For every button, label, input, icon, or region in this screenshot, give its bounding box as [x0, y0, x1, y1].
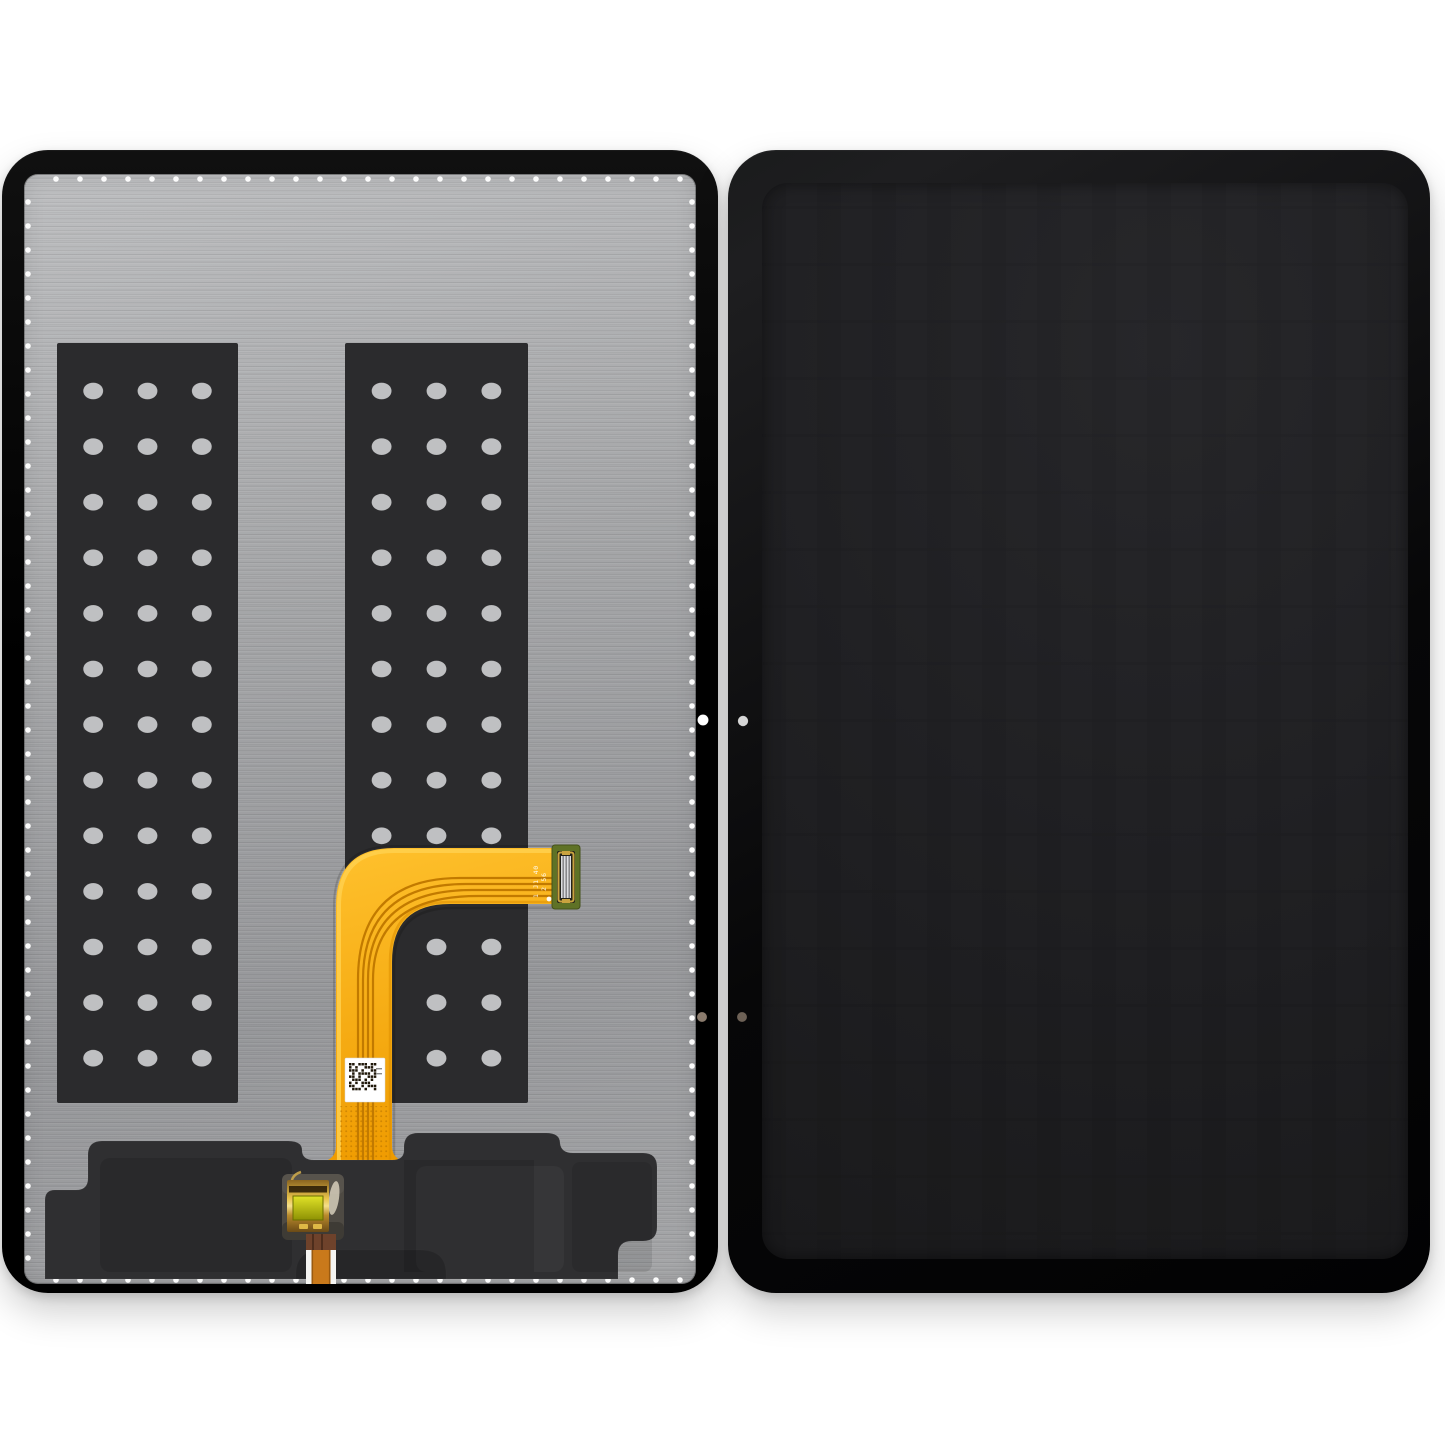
- front-panel: [728, 150, 1430, 1293]
- front-screen: [762, 183, 1408, 1259]
- metal-shield: [24, 174, 696, 1284]
- back-panel: [2, 150, 718, 1293]
- product-photo-tablet-display-assembly: 1 J1 40 2 56: [0, 0, 1445, 1445]
